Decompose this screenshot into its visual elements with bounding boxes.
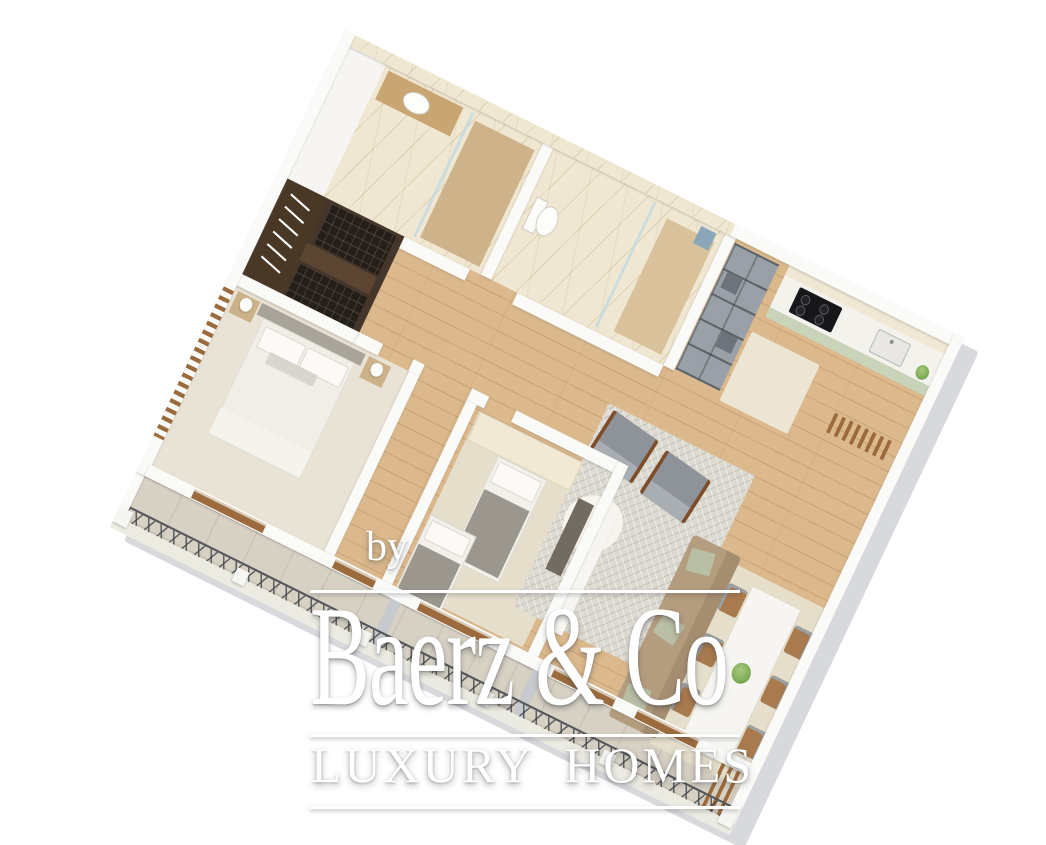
watermark-divider-bottom xyxy=(310,806,740,809)
watermark-tagline: LUXURY HOMES xyxy=(311,740,754,790)
watermark-brand: Baerz & Co xyxy=(310,585,728,728)
cooktop-burner xyxy=(813,313,826,327)
cooktop-burner xyxy=(794,304,807,318)
watermark-prefix: by xyxy=(366,526,408,568)
floor-plan-render: by Baerz & Co LUXURY HOMES xyxy=(0,0,1046,845)
